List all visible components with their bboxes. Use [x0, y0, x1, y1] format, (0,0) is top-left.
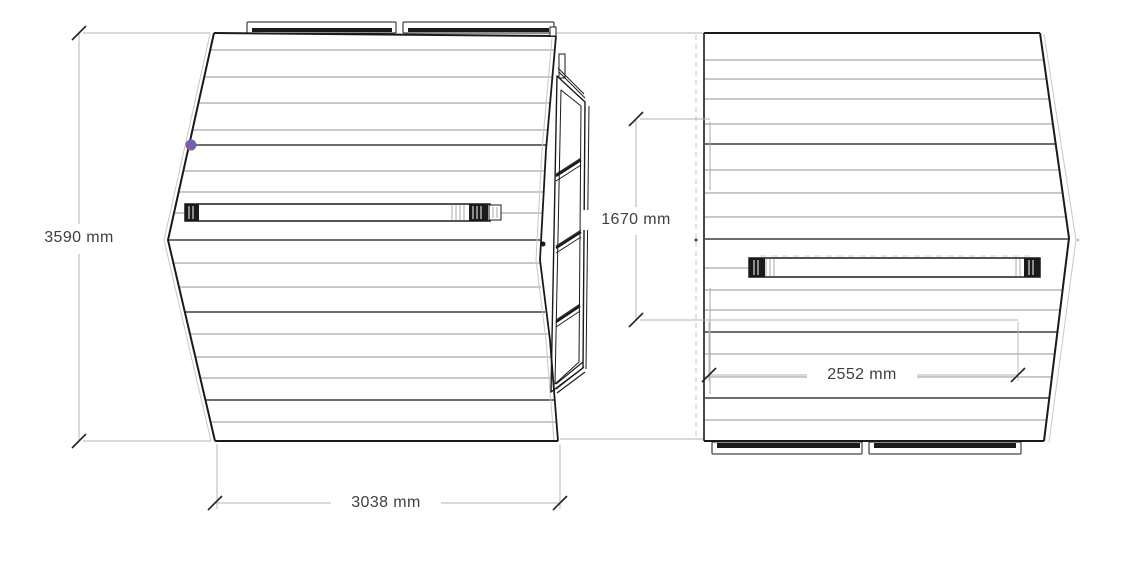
reference-lines — [556, 33, 704, 439]
dimension-overall_height — [72, 26, 211, 448]
dimension-overall_width — [208, 444, 567, 510]
drawing-canvas — [0, 0, 1136, 570]
right-view-floor-skids — [712, 442, 1021, 454]
right-view-handle — [749, 256, 1040, 277]
right-view-siding — [705, 60, 1069, 420]
left-view-body — [164, 33, 558, 441]
selection-marker — [186, 140, 197, 151]
left-view-siding — [168, 50, 556, 422]
left-view-handle — [185, 204, 501, 221]
dimension-opening_width — [702, 322, 1025, 382]
right-view-body — [695, 33, 1080, 442]
left-view-roof-skids — [247, 22, 554, 33]
elevation-drawing: 3590 mm 3038 mm 1670 mm 2552 mm — [0, 0, 1136, 570]
